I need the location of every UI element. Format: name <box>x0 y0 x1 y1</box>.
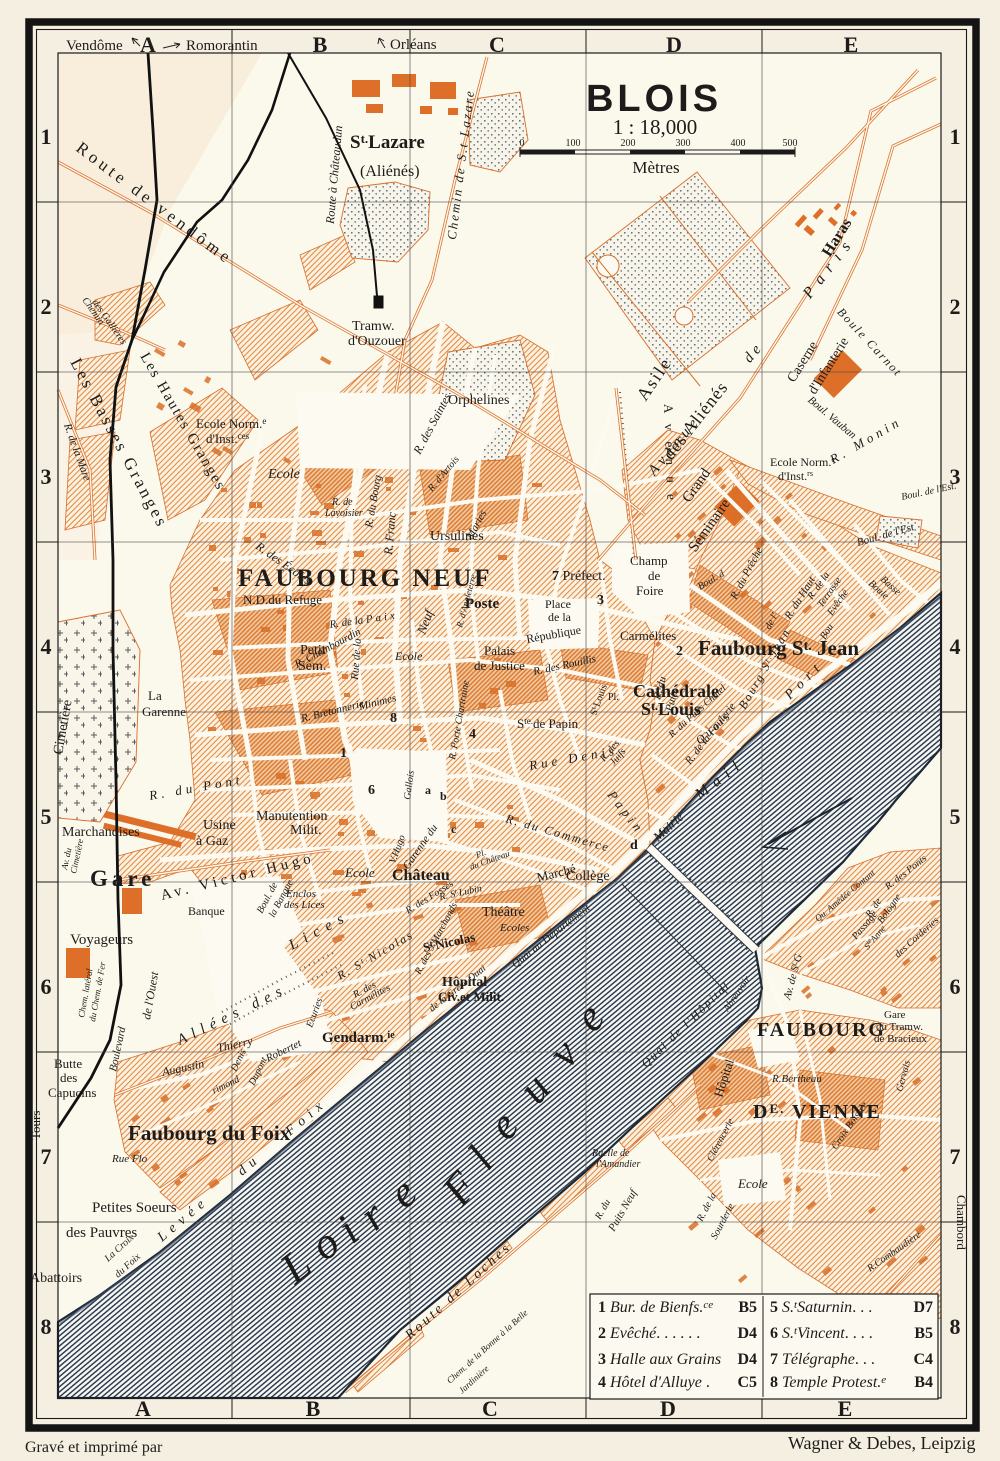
svg-text:c: c <box>451 822 457 836</box>
svg-text:Romorantin: Romorantin <box>186 38 258 54</box>
svg-text:Mètres: Mètres <box>632 158 679 177</box>
svg-text:d'Ouzouer: d'Ouzouer <box>348 334 406 349</box>
svg-text:R.Bertheau: R.Bertheau <box>771 1073 822 1085</box>
svg-text:N.D.du Refuge: N.D.du Refuge <box>243 592 322 607</box>
svg-text:8 Temple Protest.e: 8 Temple Protest.e <box>770 1374 886 1391</box>
svg-text:E: E <box>838 1396 853 1421</box>
svg-text:6: 6 <box>368 783 375 798</box>
svg-text:Tours: Tours <box>28 1111 43 1140</box>
svg-text:l'Amandier: l'Amandier <box>596 1159 640 1170</box>
svg-text:3: 3 <box>41 464 52 489</box>
svg-text:de Justice: de Justice <box>474 658 525 673</box>
svg-text:Marchandises: Marchandises <box>62 825 140 840</box>
svg-text:100: 100 <box>566 138 581 149</box>
svg-text:Rue Flo: Rue Flo <box>111 1153 148 1165</box>
svg-text:FAUBOURG: FAUBOURG <box>757 1019 886 1041</box>
svg-text:Ecole: Ecole <box>737 1176 768 1191</box>
svg-text:Pl.: Pl. <box>608 692 619 703</box>
svg-text:300: 300 <box>676 138 691 149</box>
svg-text:5: 5 <box>41 804 52 829</box>
svg-text:Collège: Collège <box>566 869 610 884</box>
svg-text:8: 8 <box>950 1314 961 1339</box>
svg-text:4: 4 <box>950 634 961 659</box>
svg-text:6 S.tVincent. . . .: 6 S.tVincent. . . . <box>770 1325 873 1342</box>
svg-text:de la: de la <box>548 610 572 624</box>
svg-text:B: B <box>306 1396 321 1421</box>
svg-text:R. de: R. de <box>331 497 353 508</box>
svg-text:C5: C5 <box>737 1374 757 1391</box>
svg-text:5: 5 <box>950 804 961 829</box>
svg-text:de: de <box>648 568 661 583</box>
svg-text:D: D <box>666 32 682 57</box>
svg-text:2 Evêché. . . . . .: 2 Evêché. . . . . . <box>598 1325 700 1342</box>
svg-text:8: 8 <box>390 711 397 726</box>
svg-text:Milit.: Milit. <box>290 823 322 838</box>
svg-text:Manutention: Manutention <box>256 809 328 824</box>
svg-text:B4: B4 <box>914 1374 933 1391</box>
svg-text:du Tramw.: du Tramw. <box>876 1021 923 1033</box>
svg-text:BLOIS: BLOIS <box>586 78 722 120</box>
svg-text:B5: B5 <box>738 1299 757 1316</box>
svg-text:5 S.tSaturnin. . .: 5 S.tSaturnin. . . <box>770 1299 872 1316</box>
svg-text:d: d <box>630 838 638 853</box>
svg-text:Wagner & Debes, Leipzig: Wagner & Debes, Leipzig <box>788 1433 975 1453</box>
svg-text:Gendarm.ie: Gendarm.ie <box>322 1030 395 1046</box>
svg-text:1 Bur. de Bienfs.ce: 1 Bur. de Bienfs.ce <box>598 1299 713 1316</box>
svg-text:Chambord: Chambord <box>954 1195 969 1250</box>
svg-text:Gravé et imprimé par: Gravé et imprimé par <box>25 1439 163 1456</box>
svg-text:4: 4 <box>469 727 476 742</box>
svg-text:Ecole: Ecole <box>267 467 300 482</box>
svg-text:de Bracieux: de Bracieux <box>874 1033 927 1045</box>
svg-text:7 Préfect.: 7 Préfect. <box>552 569 606 584</box>
svg-text:Banque: Banque <box>188 904 225 918</box>
svg-text:Usine: Usine <box>203 818 236 833</box>
svg-text:Ecole Norm.e: Ecole Norm.e <box>770 455 835 469</box>
svg-text:des: des <box>60 1070 77 1085</box>
svg-text:3: 3 <box>597 593 604 608</box>
svg-text:Ecole: Ecole <box>344 865 375 880</box>
svg-text:4 Hôtel d'Alluye .: 4 Hôtel d'Alluye . <box>598 1374 710 1391</box>
svg-text:Lavoisier: Lavoisier <box>324 508 363 519</box>
svg-text:Butte: Butte <box>54 1056 82 1071</box>
svg-text:Ruelle de: Ruelle de <box>591 1148 630 1159</box>
svg-text:Abattoirs: Abattoirs <box>30 1271 82 1286</box>
svg-text:2: 2 <box>41 294 52 319</box>
svg-text:FAUBOURG NEUF: FAUBOURG NEUF <box>238 565 493 592</box>
svg-text:Orphelines: Orphelines <box>448 393 509 408</box>
svg-text:Carmélites: Carmélites <box>620 628 676 643</box>
svg-text:Champ: Champ <box>630 553 668 568</box>
svg-text:Foire: Foire <box>636 583 664 598</box>
svg-text:7: 7 <box>950 1144 961 1169</box>
svg-text:C4: C4 <box>913 1351 933 1368</box>
svg-text:D4: D4 <box>737 1325 757 1342</box>
svg-text:Capucins: Capucins <box>48 1085 96 1100</box>
svg-text:1: 1 <box>340 746 347 761</box>
svg-text:b: b <box>440 789 447 803</box>
svg-text:D4: D4 <box>737 1351 757 1368</box>
svg-text:7 Télégraphe. . .: 7 Télégraphe. . . <box>770 1351 875 1368</box>
svg-text:E: E <box>844 32 859 57</box>
svg-text:Château: Château <box>392 867 450 884</box>
svg-text:a: a <box>425 783 431 797</box>
svg-text:Petites Soeurs: Petites Soeurs <box>92 1200 177 1216</box>
svg-text:A: A <box>140 32 156 57</box>
svg-text:Ecoles: Ecoles <box>499 922 529 934</box>
svg-text:Garenne: Garenne <box>142 704 186 719</box>
svg-text:Ecole Norm.e: Ecole Norm.e <box>196 416 266 431</box>
svg-text:3 Halle aux Grains: 3 Halle aux Grains <box>598 1351 721 1368</box>
svg-text:Théâtre: Théâtre <box>482 905 525 920</box>
svg-text:des Lices: des Lices <box>284 899 325 911</box>
svg-text:B: B <box>313 32 328 57</box>
svg-text:Ecole: Ecole <box>394 649 423 663</box>
svg-text:(Aliénés): (Aliénés) <box>360 163 420 180</box>
svg-text:Gare: Gare <box>884 1009 905 1021</box>
svg-text:4: 4 <box>41 634 52 659</box>
svg-text:Palais: Palais <box>484 643 515 658</box>
svg-text:400: 400 <box>731 138 746 149</box>
svg-text:Vendôme: Vendôme <box>66 38 123 54</box>
svg-text:à Gaz: à Gaz <box>196 834 228 849</box>
svg-text:1: 1 <box>41 124 52 149</box>
svg-text:2: 2 <box>950 294 961 319</box>
svg-text:C: C <box>489 32 505 57</box>
svg-text:7: 7 <box>41 1144 52 1169</box>
svg-text:Tramw.: Tramw. <box>352 319 395 334</box>
svg-text:A: A <box>135 1396 151 1421</box>
svg-text:2: 2 <box>676 644 683 659</box>
svg-text:200: 200 <box>621 138 636 149</box>
svg-text:1 : 18,000: 1 : 18,000 <box>613 115 698 139</box>
svg-text:D: D <box>660 1396 676 1421</box>
svg-text:B5: B5 <box>914 1325 933 1342</box>
svg-text:C: C <box>482 1396 498 1421</box>
svg-text:Orléans: Orléans <box>390 37 437 53</box>
svg-text:Gare: Gare <box>90 866 155 891</box>
svg-text:La: La <box>148 688 162 703</box>
svg-text:6: 6 <box>950 974 961 999</box>
svg-text:8: 8 <box>41 1314 52 1339</box>
svg-text:Faubourg du Foix: Faubourg du Foix <box>128 1121 291 1145</box>
svg-text:Place: Place <box>545 597 571 611</box>
svg-text:D7: D7 <box>913 1299 933 1316</box>
svg-text:6: 6 <box>41 974 52 999</box>
svg-text:1: 1 <box>950 124 961 149</box>
svg-text:Voyageurs: Voyageurs <box>70 932 133 948</box>
